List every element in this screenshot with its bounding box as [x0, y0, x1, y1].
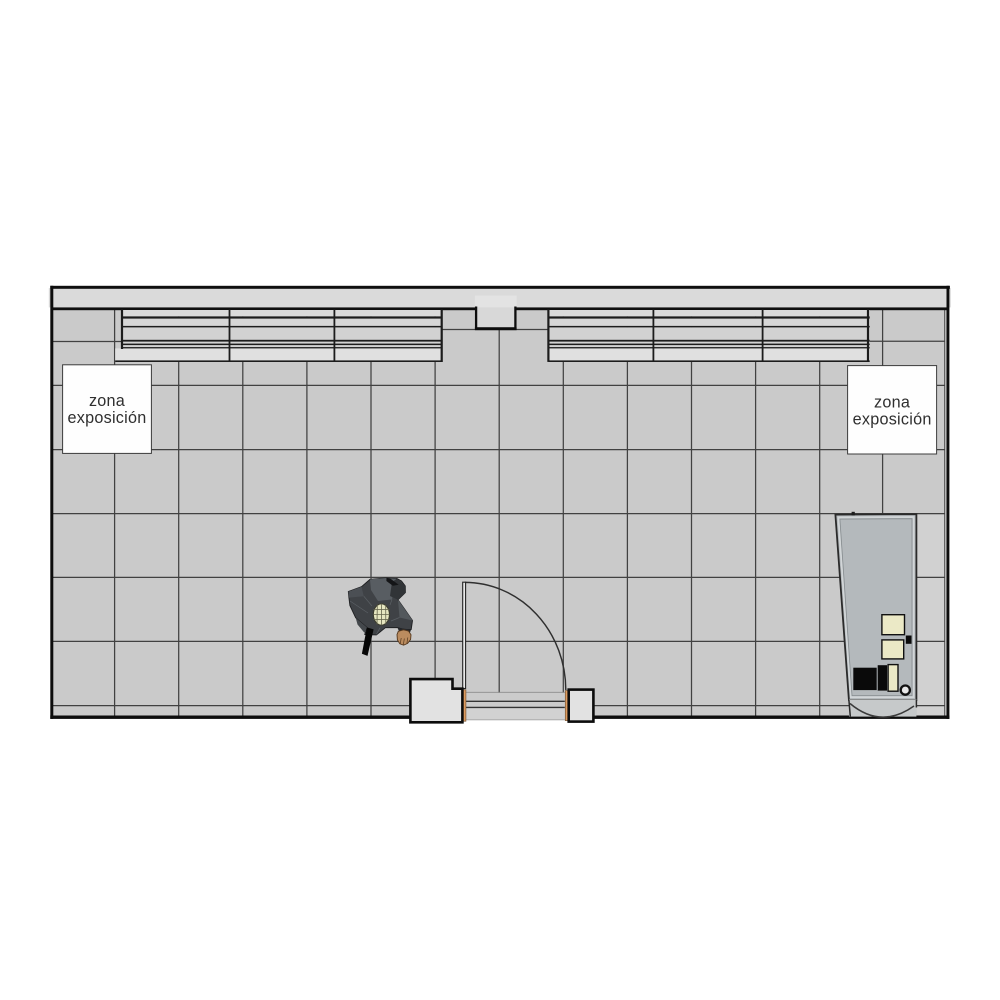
svg-text:zona: zona [874, 393, 910, 411]
svg-text:exposición: exposición [853, 410, 932, 428]
svg-text:exposición: exposición [68, 409, 147, 427]
svg-text:zona: zona [89, 392, 125, 410]
